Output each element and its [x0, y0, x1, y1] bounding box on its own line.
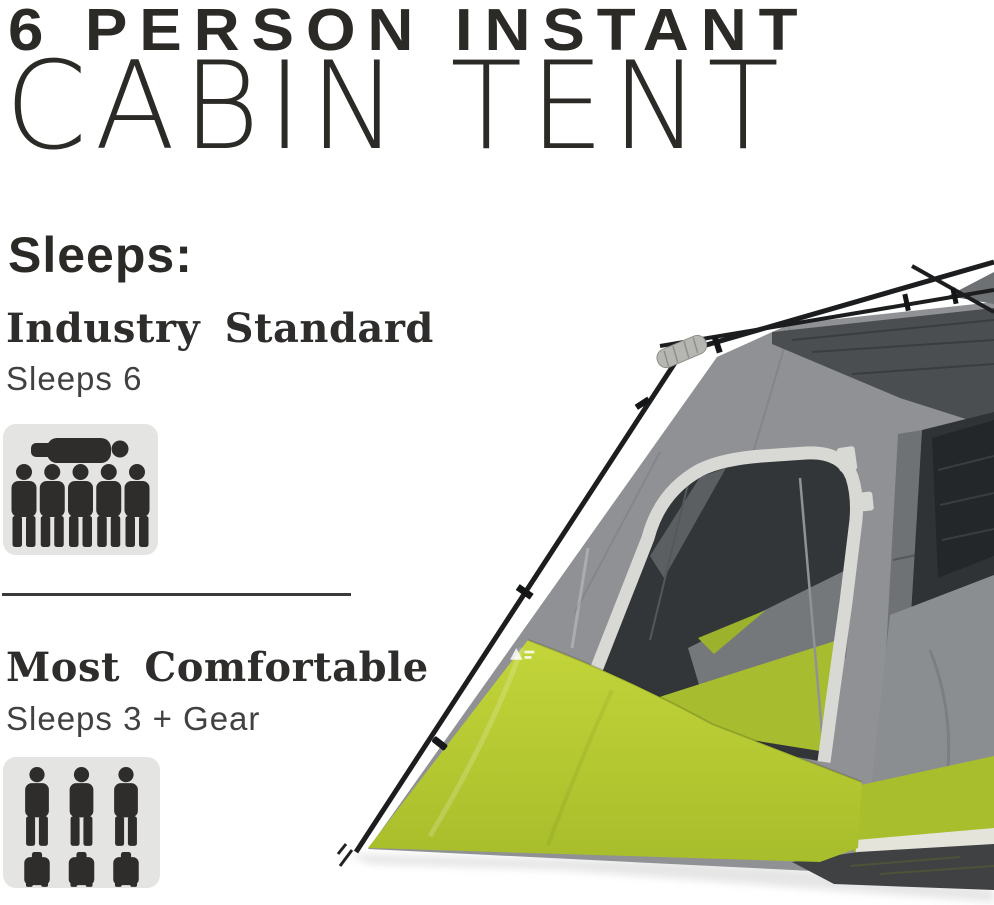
ground-stake — [338, 844, 352, 866]
foam-grip — [654, 333, 709, 371]
tent-photo — [0, 0, 994, 905]
product-infographic: 6 PERSON INSTANT CABIN TENT Sleeps: Indu… — [0, 0, 994, 905]
